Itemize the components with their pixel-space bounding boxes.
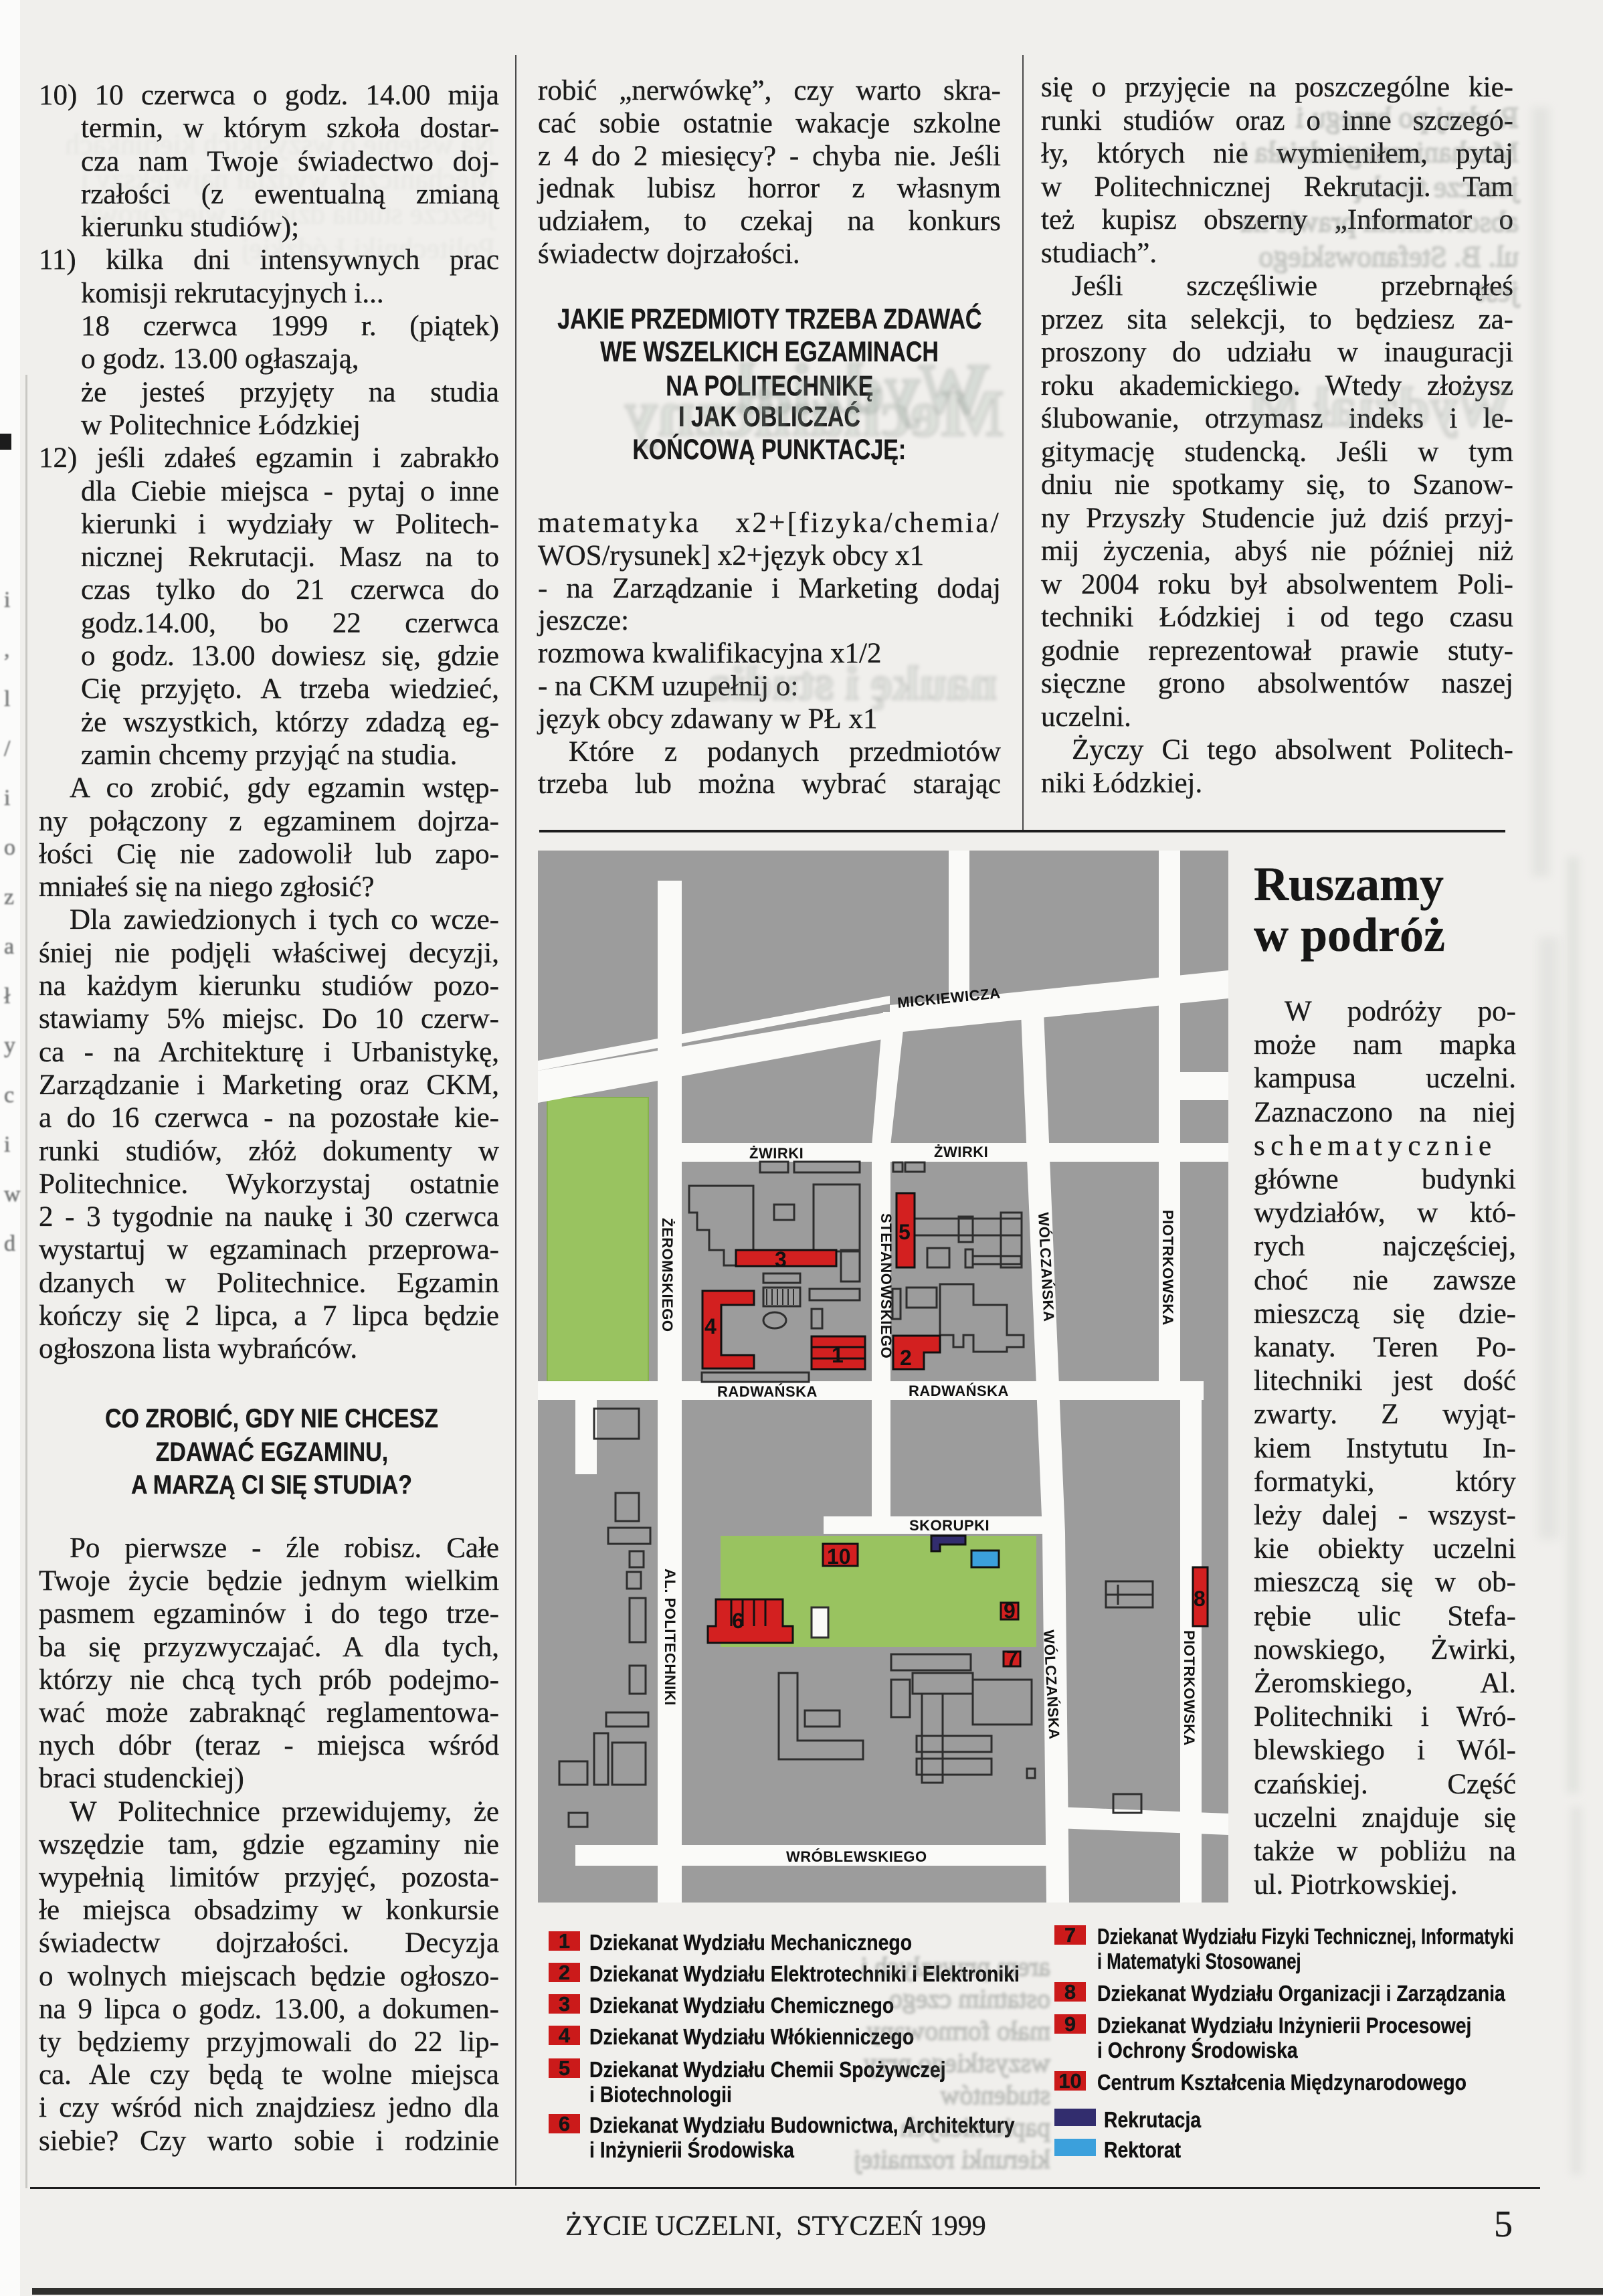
svg-text:STEFANOWSKIEGO: STEFANOWSKIEGO	[878, 1213, 894, 1358]
svg-text:8: 8	[1194, 1587, 1206, 1611]
svg-text:5: 5	[899, 1220, 911, 1244]
svg-text:AL. POLITECHNIKI: AL. POLITECHNIKI	[662, 1569, 678, 1706]
svg-text:1: 1	[832, 1343, 844, 1367]
svg-text:4: 4	[704, 1314, 717, 1338]
svg-text:7: 7	[1006, 1646, 1018, 1670]
svg-text:ŻWIRKI: ŻWIRKI	[749, 1145, 804, 1162]
svg-text:6: 6	[732, 1609, 744, 1633]
svg-text:ŻWIRKI: ŻWIRKI	[934, 1144, 988, 1160]
svg-text:10: 10	[827, 1544, 851, 1569]
svg-text:3: 3	[775, 1247, 787, 1271]
svg-text:9: 9	[1004, 1599, 1016, 1623]
svg-text:WRÓBLEWSKIEGO: WRÓBLEWSKIEGO	[786, 1848, 927, 1865]
svg-text:SKORUPKI: SKORUPKI	[909, 1517, 989, 1534]
svg-text:ŻEROMSKIEGO: ŻEROMSKIEGO	[659, 1218, 676, 1332]
svg-text:RADWAŃSKA: RADWAŃSKA	[717, 1383, 818, 1400]
svg-text:2: 2	[900, 1346, 912, 1370]
svg-text:RADWAŃSKA: RADWAŃSKA	[909, 1383, 1009, 1399]
svg-text:PIOTRKOWSKA: PIOTRKOWSKA	[1181, 1630, 1198, 1746]
svg-text:PIOTRKOWSKA: PIOTRKOWSKA	[1159, 1210, 1176, 1326]
